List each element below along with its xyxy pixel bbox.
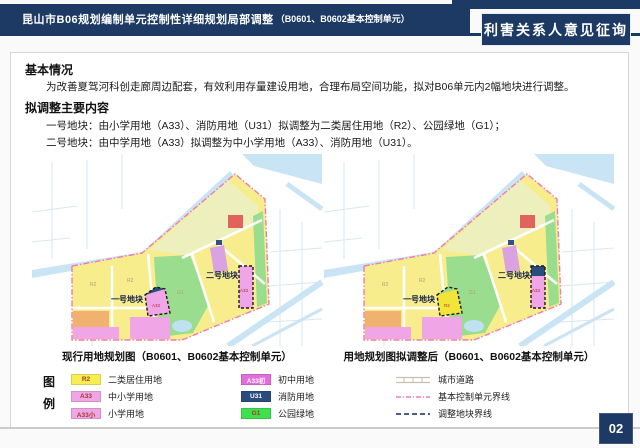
legend-title-char: 例 (43, 395, 55, 412)
page-title-bar: 昆山市B06规划编制单元控制性详细规划局部调整 （B0601、B0602基本控制… (0, 4, 470, 33)
code-r2: R2 (382, 282, 389, 288)
pond (172, 320, 192, 332)
code-r2: R2 (90, 282, 97, 288)
code-g1: G1 (469, 290, 476, 296)
legend-swatch-a33: A33 (71, 391, 101, 402)
legend-col-1: R2 二类居住用地 A33 中小学用地 A33小 小学用地 (71, 371, 219, 422)
plot1-code: R2 (444, 303, 450, 308)
legend-label: 基本控制单元界线 (438, 390, 510, 403)
legend-col-2: A33初 初中用地 U31 消防用地 G1 公园绿地 (241, 371, 373, 422)
legend-swatch-u31: U31 (241, 391, 271, 402)
legend-label: 小学用地 (108, 407, 144, 420)
legend-title: 图 例 (43, 373, 55, 422)
plot1-label: 一号地块 (403, 294, 436, 304)
legend-swatch-g1: G1 (241, 408, 271, 419)
legend-label: 初中用地 (278, 373, 314, 386)
plot2-code: A33 (532, 288, 541, 293)
legend-title-char: 图 (43, 373, 55, 390)
legend-label: 二类居住用地 (108, 373, 162, 386)
page-title: 昆山市B06规划编制单元控制性详细规划局部调整 (22, 11, 274, 27)
adjust-item-1: 一号地块：由小学用地（A33）、消防用地（U31）拟调整为二类居住用地（R2）、… (25, 118, 614, 135)
plot2-fire-parcel (531, 266, 545, 276)
code-r2: R2 (222, 270, 229, 276)
legend-label: 调整地块界线 (438, 407, 492, 420)
plot2-parcel (239, 266, 253, 308)
maps-row: 一号地块 二号地块 A33 A33 R2 R2 R2 G1 现行用地规划图（B0… (25, 154, 614, 364)
code-r2: R2 (127, 278, 134, 284)
map-adjusted-canvas: 一号地块 二号地块 R2 A33 R2 R2 R2 G1 (323, 154, 615, 346)
basic-situation-text: 为改善夏驾河科创走廊周边配套，有效利用存量建设用地，合理布局空间功能，拟对B06… (25, 80, 614, 96)
map-adjusted: 一号地块 二号地块 R2 A33 R2 R2 R2 G1 用地规划图拟调整后（B… (323, 154, 615, 364)
legend-item-unit-boundary: 基本控制单元界线 (395, 388, 565, 405)
utility-dot (216, 240, 222, 245)
city-road-icon (395, 374, 431, 386)
plot1-code: A33 (152, 303, 161, 308)
code-g1: G1 (177, 290, 184, 296)
legend-item-a33-primary: A33小 小学用地 (71, 405, 219, 422)
school-parcel-s (422, 317, 462, 339)
legend-item-g1: G1 公园绿地 (241, 405, 373, 422)
content-card: 基本情况 为改善夏驾河科创走廊周边配套，有效利用存量建设用地，合理布局空间功能，… (10, 52, 629, 428)
legend-swatch-r2: R2 (71, 374, 101, 385)
plot2-code: A33 (240, 288, 249, 293)
commercial-parcel (365, 311, 401, 327)
map-current: 一号地块 二号地块 A33 A33 R2 R2 R2 G1 现行用地规划图（B0… (31, 154, 323, 364)
legend-item-adjust-boundary: 调整地块界线 (395, 405, 565, 422)
adjust-boundary-icon (395, 408, 431, 420)
page-title-sub: （B0601、B0602基本控制单元） (276, 12, 410, 25)
legend-col-3: 城市道路 基本控制单元界线 调整地块界线 (395, 371, 565, 422)
legend-columns: R2 二类居住用地 A33 中小学用地 A33小 小学用地 A33初 初中用地 (71, 371, 565, 422)
legend-swatch-a33-primary: A33小 (71, 408, 101, 419)
adjust-content-heading: 拟调整主要内容 (25, 99, 614, 116)
code-r2: R2 (419, 278, 426, 284)
code-r2: R2 (514, 270, 521, 276)
map-current-canvas: 一号地块 二号地块 A33 A33 R2 R2 R2 G1 (31, 154, 323, 346)
map-current-caption: 现行用地规划图（B0601、B0602基本控制单元） (62, 349, 292, 364)
legend-item-city-road: 城市道路 (395, 371, 565, 388)
footer-divider (0, 427, 640, 429)
school-parcel-sw (73, 327, 119, 339)
unit-boundary-icon (395, 391, 431, 403)
legend-swatch-a33-junior: A33初 (241, 374, 271, 385)
header-top-strip (452, 0, 640, 9)
legend-label: 城市道路 (438, 373, 474, 386)
legend-item-u31: U31 消防用地 (241, 388, 373, 405)
commercial-parcel (73, 311, 109, 327)
plot1-label: 一号地块 (111, 294, 144, 304)
utility-dot (508, 240, 514, 245)
school-parcel-sw (365, 327, 411, 339)
page-number: 02 (599, 413, 633, 444)
legend-label: 公园绿地 (278, 407, 314, 420)
basic-situation-heading: 基本情况 (25, 61, 614, 78)
pond (464, 320, 484, 332)
red-parcel (520, 215, 535, 228)
legend: 图 例 R2 二类居住用地 A33 中小学用地 A33小 小学用地 (43, 371, 614, 422)
school-parcel-s (130, 317, 170, 339)
consultation-badge: 利害关系人意见征询 (481, 13, 631, 46)
red-parcel (228, 215, 243, 228)
legend-label: 消防用地 (278, 390, 314, 403)
legend-label: 中小学用地 (108, 390, 153, 403)
legend-item-a33: A33 中小学用地 (71, 388, 219, 405)
legend-item-r2: R2 二类居住用地 (71, 371, 219, 388)
map-adjusted-caption: 用地规划图拟调整后（B0601、B0602基本控制单元） (344, 349, 595, 364)
adjust-item-2: 二号地块：由中学用地（A33）拟调整为中小学用地（A33）、消防用地（U31）。 (25, 135, 614, 152)
legend-item-a33-junior: A33初 初中用地 (241, 371, 373, 388)
